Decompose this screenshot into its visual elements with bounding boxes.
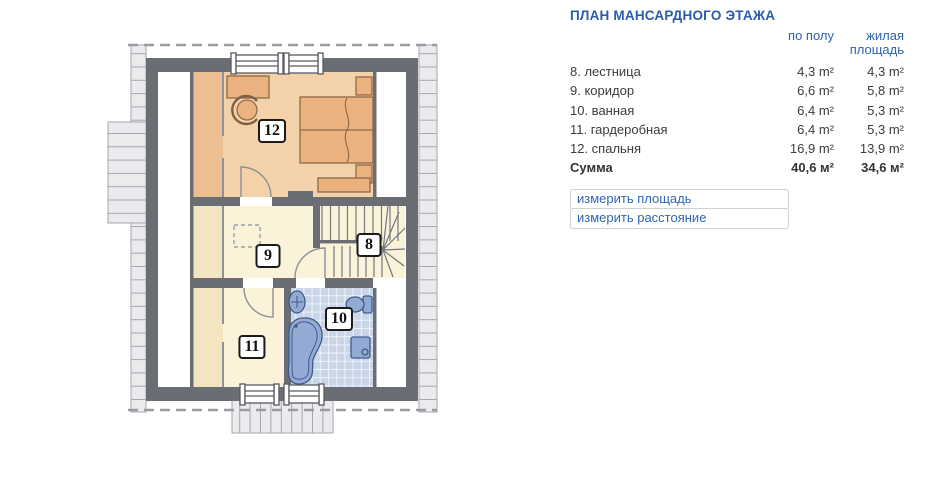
room-label-stairs: 8: [357, 233, 382, 257]
page: 12 9 8 10 11 ПЛАН МАНСАРДНОГО ЭТАЖА по п…: [0, 0, 932, 502]
area-table: 8. лестница 4,3 m² 4,3 m² 9. коридор 6,6…: [570, 62, 904, 178]
dresser: [318, 178, 370, 192]
room-name: 10. ванная: [570, 101, 744, 120]
balcony: [232, 399, 333, 433]
table-row: 12. спальня 16,9 m² 13,9 m²: [570, 139, 904, 158]
table-row: 8. лестница 4,3 m² 4,3 m²: [570, 62, 904, 81]
floor-area: 6,6 m²: [744, 81, 834, 100]
room-name: 11. гардеробная: [570, 120, 744, 139]
room-label-wardrobe: 11: [238, 335, 265, 359]
living-area: 13,9 m²: [834, 139, 904, 158]
floor-area: 16,9 m²: [744, 139, 834, 158]
living-area: 5,8 m²: [834, 81, 904, 100]
table-row: 9. коридор 6,6 m² 5,8 m²: [570, 81, 904, 100]
room-name: 12. спальня: [570, 139, 744, 158]
building: [146, 53, 418, 405]
measure-tools: измерить площадь измерить расстояние: [570, 189, 783, 229]
room-label-bedroom: 12: [258, 119, 286, 143]
living-area: 5,3 m²: [834, 120, 904, 139]
table-header-row: по полу жилая площадь: [570, 29, 904, 59]
total-floor-area: 40,6 м²: [744, 158, 834, 177]
area-table-panel: ПЛАН МАНСАРДНОГО ЭТАЖА по полу жилая пло…: [570, 8, 904, 229]
column-header-floor: по полу: [744, 29, 834, 59]
room-label-corridor: 9: [256, 244, 281, 268]
table-row: 11. гардеробная 6,4 m² 5,3 m²: [570, 120, 904, 139]
floor-area: 4,3 m²: [744, 62, 834, 81]
desk: [227, 76, 269, 98]
floor-area: 6,4 m²: [744, 120, 834, 139]
total-living-area: 34,6 м²: [834, 158, 904, 177]
room-name: 9. коридор: [570, 81, 744, 100]
page-title: ПЛАН МАНСАРДНОГО ЭТАЖА: [570, 8, 904, 23]
total-label: Сумма: [570, 158, 744, 177]
chair: [237, 100, 257, 120]
nightstand: [356, 77, 372, 95]
room-name: 8. лестница: [570, 62, 744, 81]
table-total-row: Сумма 40,6 м² 34,6 м²: [570, 158, 904, 177]
floor-area: 6,4 m²: [744, 101, 834, 120]
measure-distance-link[interactable]: измерить расстояние: [570, 208, 789, 229]
table-row: 10. ванная 6,4 m² 5,3 m²: [570, 101, 904, 120]
measure-area-link[interactable]: измерить площадь: [570, 189, 789, 210]
living-area: 4,3 m²: [834, 62, 904, 81]
room-label-bathroom: 10: [325, 307, 353, 331]
column-header-living: жилая площадь: [834, 29, 904, 59]
living-area: 5,3 m²: [834, 101, 904, 120]
